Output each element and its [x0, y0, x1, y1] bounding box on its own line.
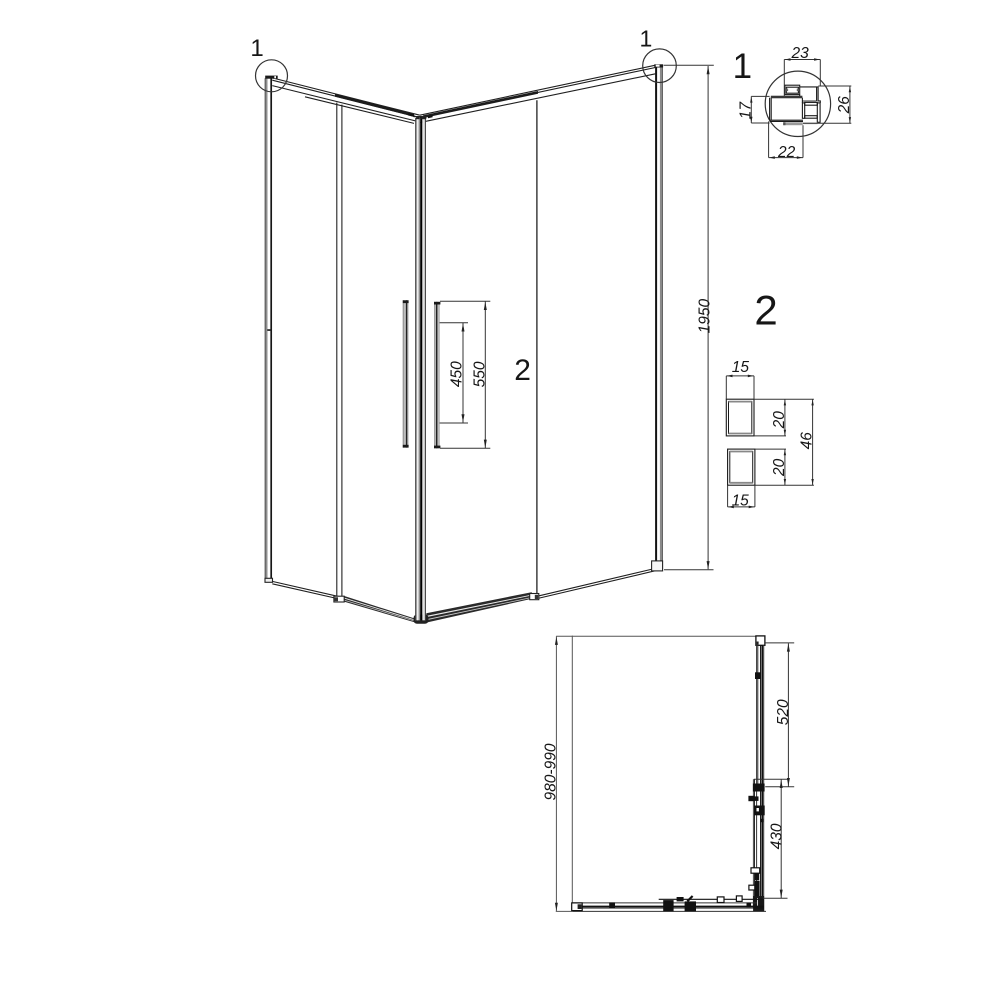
- svg-text:520: 520: [775, 699, 792, 725]
- svg-text:26: 26: [836, 96, 853, 115]
- svg-text:23: 23: [790, 45, 809, 62]
- svg-text:1: 1: [250, 35, 263, 62]
- svg-text:980-990: 980-990: [543, 743, 560, 800]
- svg-text:430: 430: [769, 823, 786, 849]
- svg-text:2: 2: [514, 354, 531, 387]
- svg-text:1950: 1950: [696, 298, 713, 333]
- svg-text:450: 450: [449, 361, 466, 387]
- svg-text:2: 2: [754, 287, 777, 334]
- svg-text:15: 15: [732, 359, 750, 376]
- svg-text:46: 46: [798, 432, 815, 450]
- svg-text:22: 22: [777, 144, 796, 161]
- svg-text:20: 20: [771, 411, 788, 430]
- svg-text:15: 15: [732, 493, 750, 510]
- svg-text:17: 17: [738, 101, 755, 120]
- svg-text:20: 20: [771, 458, 788, 477]
- svg-text:550: 550: [471, 361, 488, 387]
- svg-text:1: 1: [640, 26, 653, 52]
- svg-text:1: 1: [733, 47, 752, 86]
